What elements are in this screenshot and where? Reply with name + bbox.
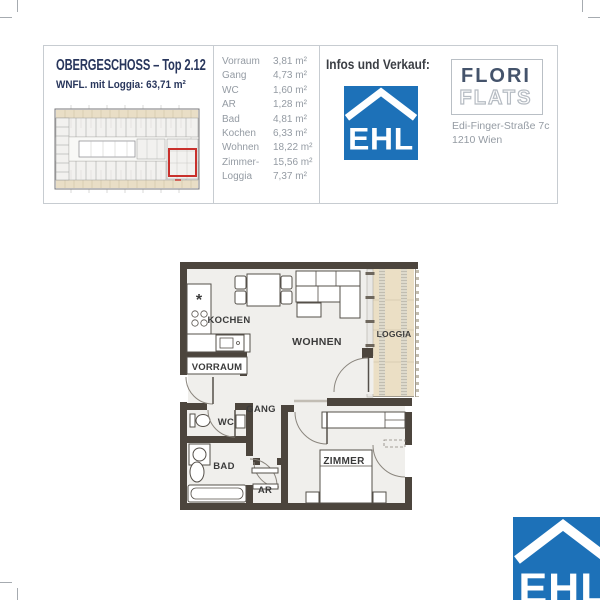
area-row: AR1,28 m² — [222, 98, 316, 112]
building-overview-plan — [53, 105, 201, 193]
area-row: WC1,60 m² — [222, 84, 316, 98]
flori-flats-logo: FLORI FLATS — [451, 59, 543, 115]
area-row-label: Gang — [222, 69, 273, 83]
area-row: Vorraum3,81 m² — [222, 55, 316, 69]
page-subtitle: WNFL. mit Loggia: 63,71 m² — [56, 79, 186, 91]
area-row-label: Bad — [222, 113, 273, 127]
kitchen-counter — [187, 284, 250, 352]
flats-logo-text: FLATS — [460, 87, 533, 109]
area-row-value: 4,73 m² — [273, 69, 316, 83]
contact-address: Edi-Finger-Straße 7c 1210 Wien — [452, 119, 549, 147]
kitchen-sink-symbol: * — [196, 292, 203, 309]
loggia-floor — [373, 269, 414, 397]
loggia-window-wall — [367, 269, 373, 397]
dining-set — [235, 274, 292, 306]
info-panel: OBERGESCHOSS – Top 2.12 WNFL. mit Loggia… — [43, 45, 558, 204]
flori-logo-text: FLORI — [461, 65, 531, 87]
ehl-logo-footer: EHL — [513, 517, 600, 600]
area-row-label: AR — [222, 98, 273, 112]
sleeping-area-floor — [187, 400, 405, 503]
sofa — [296, 271, 360, 318]
crop-mark — [17, 0, 18, 12]
area-row: Wohnen18,22 m² — [222, 141, 316, 155]
area-table: Vorraum3,81 m² Gang4,73 m² WC1,60 m² AR1… — [222, 55, 316, 185]
area-row: Zimmer-15,56 m² — [222, 156, 316, 170]
room-label-bad: BAD — [213, 461, 234, 472]
area-row: Loggia7,37 m² — [222, 170, 316, 184]
crop-mark — [582, 0, 583, 12]
area-row-value: 1,28 m² — [273, 98, 316, 112]
flyer-page: OBERGESCHOSS – Top 2.12 WNFL. mit Loggia… — [0, 0, 600, 600]
walls — [180, 262, 418, 510]
contact-heading: Infos und Verkauf: — [326, 56, 430, 72]
vorraum-closet — [187, 357, 247, 374]
ehl-logo-text: EHL — [348, 121, 414, 157]
bathroom-fixtures — [188, 444, 246, 502]
area-row-label: WC — [222, 84, 273, 98]
ehl-logo: EHL — [344, 86, 418, 160]
address-line: Edi-Finger-Straße 7c — [452, 119, 549, 133]
room-label-wohnen: WOHNEN — [292, 336, 342, 348]
stove-burners — [192, 311, 207, 326]
area-row-label: Vorraum — [222, 55, 273, 69]
room-label-ar: AR — [258, 485, 272, 496]
area-row-label: Kochen — [222, 127, 273, 141]
area-row-value: 15,56 m² — [273, 156, 316, 170]
area-row-label: Zimmer- — [222, 156, 273, 170]
page-title: OBERGESCHOSS – Top 2.12 — [56, 57, 206, 75]
area-row-value: 4,81 m² — [273, 113, 316, 127]
area-row-value: 3,81 m² — [273, 55, 316, 69]
living-area-floor — [187, 269, 373, 403]
panel-divider — [213, 46, 214, 203]
area-row-label: Loggia — [222, 170, 273, 184]
crop-mark — [0, 582, 12, 583]
door-swings — [186, 358, 405, 487]
area-row-label: Wohnen — [222, 141, 273, 155]
area-row-value: 7,37 m² — [273, 170, 316, 184]
area-row-value: 1,60 m² — [273, 84, 316, 98]
room-label-zimmer: ZIMMER — [323, 456, 365, 467]
area-row: Kochen6,33 m² — [222, 127, 316, 141]
area-row-value: 18,22 m² — [273, 141, 316, 155]
room-label-vorraum: VORRAUM — [192, 362, 242, 373]
area-row: Gang4,73 m² — [222, 69, 316, 83]
crop-mark — [588, 17, 600, 18]
area-row-value: 6,33 m² — [273, 127, 316, 141]
ehl-logo-text: EHL — [519, 565, 600, 600]
room-label-gang: GANG — [246, 404, 276, 415]
room-label-wc: WC — [218, 417, 234, 428]
bedroom-furniture — [306, 412, 405, 503]
room-label-kochen: KOCHEN — [208, 315, 251, 326]
area-row: Bad4,81 m² — [222, 113, 316, 127]
panel-divider — [319, 46, 320, 203]
crop-mark — [17, 588, 18, 600]
room-label-loggia: LOGGIA — [377, 329, 412, 339]
door-leaves — [213, 358, 369, 444]
address-line: 1210 Wien — [452, 133, 549, 147]
crop-mark — [0, 17, 12, 18]
wc-fixtures — [190, 414, 245, 428]
